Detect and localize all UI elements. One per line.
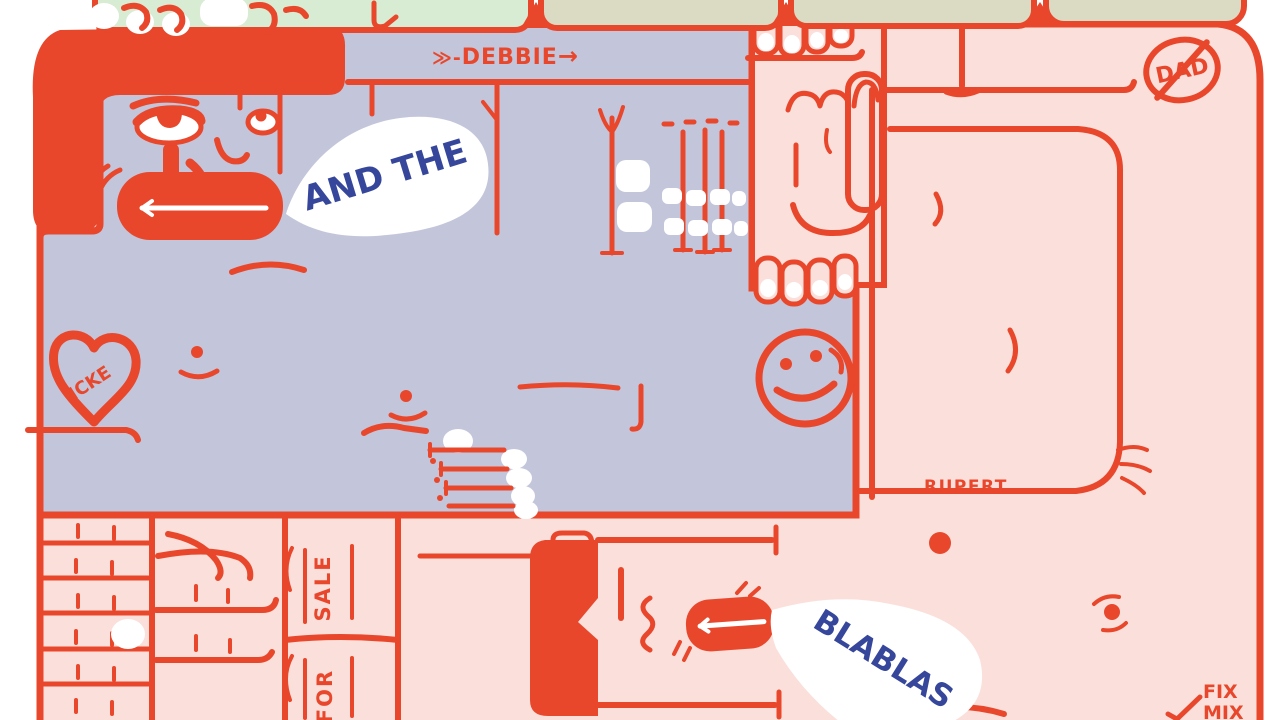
- illustration-stage: ICKE: [0, 0, 1280, 720]
- mole-dot: [929, 532, 951, 554]
- lips: [117, 172, 283, 240]
- illustration-canvas: ICKE: [0, 0, 1280, 720]
- rupert-label: RUPERT: [924, 477, 1008, 497]
- svg-text:MIX: MIX: [1203, 702, 1244, 720]
- sale-label: SALE: [311, 554, 335, 621]
- debbie-label: ≫-DEBBIE→: [432, 42, 579, 70]
- svg-text:FIX: FIX: [1203, 681, 1238, 703]
- bottom-lips: [684, 595, 775, 653]
- fist-block: [748, 10, 884, 304]
- for-label: FOR: [313, 669, 337, 720]
